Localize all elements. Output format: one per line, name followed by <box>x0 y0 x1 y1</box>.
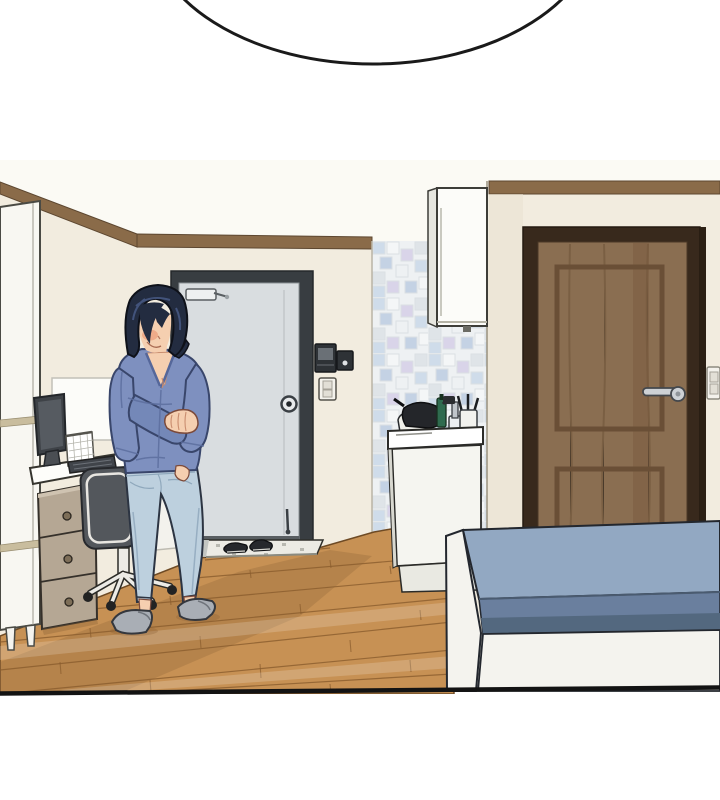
caster-wheel <box>167 585 177 595</box>
entry-step <box>194 540 323 557</box>
bottom-margin <box>0 694 720 800</box>
bed <box>446 521 720 691</box>
brown-door <box>523 227 706 545</box>
wall-shade-strip <box>487 194 523 544</box>
wall-cabinet <box>428 188 487 332</box>
hand <box>165 410 198 434</box>
door-edge-pull <box>287 509 288 531</box>
panel-art <box>0 0 720 800</box>
drawer-knob <box>63 512 71 520</box>
door-closer <box>186 289 216 300</box>
drawer-knob <box>65 598 73 606</box>
drawer-knob <box>64 555 72 563</box>
left-wardrobe <box>0 201 40 650</box>
mattress-top <box>463 521 720 599</box>
pan <box>402 402 442 428</box>
bed-base <box>478 630 720 691</box>
light-switch <box>319 378 336 400</box>
right-light-switch <box>707 367 720 399</box>
webtoon-page <box>0 0 720 800</box>
chair-cylinder <box>118 548 129 574</box>
caster-wheel <box>106 601 116 611</box>
caster-wheel <box>83 592 93 602</box>
